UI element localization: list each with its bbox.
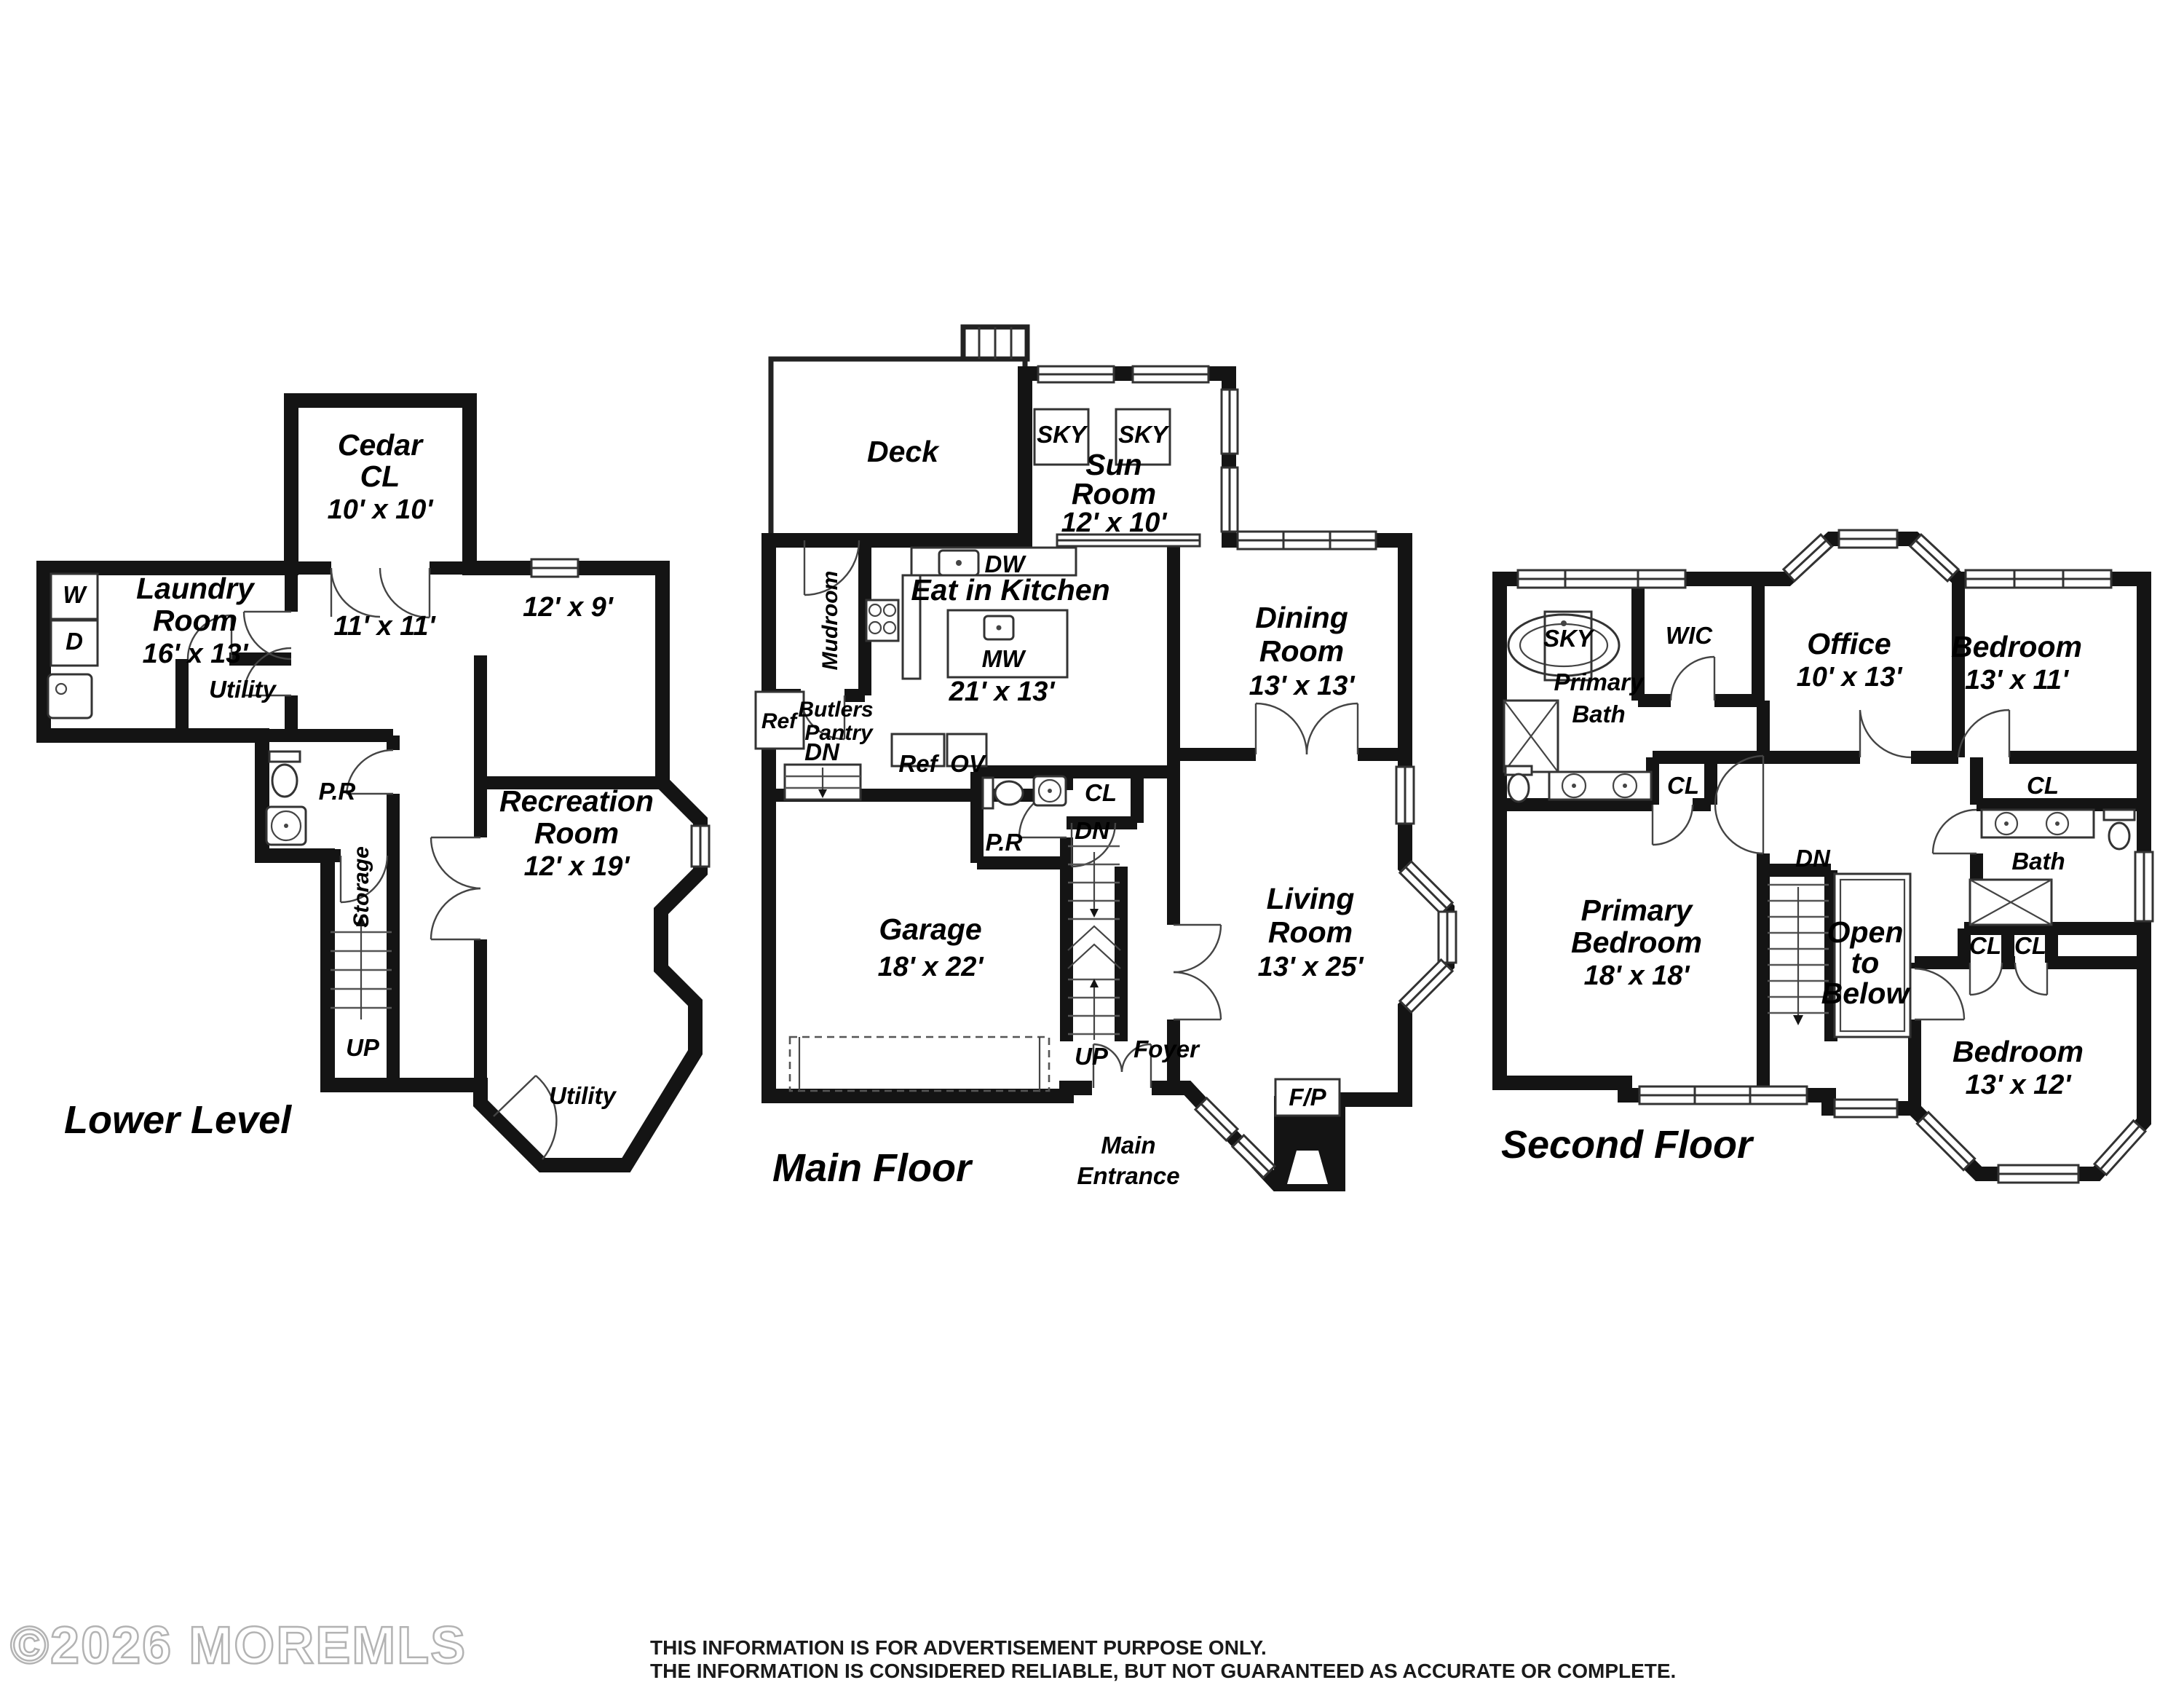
office-dims: 10' x 13' bbox=[1797, 662, 1904, 693]
office-label: Office bbox=[1807, 627, 1891, 660]
primary-shower bbox=[1504, 701, 1558, 772]
entrance-label-1: Main bbox=[1101, 1132, 1155, 1159]
living-label-1: Living bbox=[1267, 882, 1355, 915]
powder-sink bbox=[266, 807, 306, 845]
storage-label: Storage bbox=[349, 846, 373, 928]
bedroom2-dims: 13' x 12' bbox=[1966, 1070, 2073, 1100]
living-dims: 13' x 25' bbox=[1258, 952, 1365, 982]
dining-label-2: Room bbox=[1259, 634, 1344, 668]
sunroom-dims: 12' x 10' bbox=[1061, 508, 1168, 538]
cedar-label-1: Cedar bbox=[338, 428, 424, 462]
recreation-label-2: Room bbox=[534, 816, 619, 850]
bedroom1-closet-label: CL bbox=[2027, 772, 2059, 799]
laundry-dims: 16' x 13' bbox=[143, 639, 250, 669]
living-label-2: Room bbox=[1268, 915, 1353, 949]
second-dn-label: DN bbox=[1795, 845, 1831, 872]
primary-bath-label-1: Primary bbox=[1554, 669, 1645, 695]
dryer-label: D bbox=[66, 628, 83, 655]
primary-closet-label: CL bbox=[1667, 772, 1699, 799]
pantry-dn-label: DN bbox=[804, 738, 840, 765]
deck-label: Deck bbox=[867, 435, 940, 468]
lower-level-plan: W D Cedar CL 10' x 10' Laundry Room 16' … bbox=[44, 401, 709, 1165]
fireplace-label: F/P bbox=[1289, 1084, 1326, 1111]
stove bbox=[866, 600, 898, 641]
primary-vanity bbox=[1549, 772, 1651, 800]
wic-label: WIC bbox=[1666, 622, 1713, 649]
main-dn-label: DN bbox=[1075, 817, 1110, 844]
mw-label: MW bbox=[982, 645, 1026, 672]
lower-powder-label: P.R bbox=[319, 778, 356, 805]
kitchen-sink bbox=[939, 551, 978, 575]
dining-dims: 13' x 13' bbox=[1249, 671, 1356, 701]
primary-bedroom-dims: 18' x 18' bbox=[1584, 961, 1691, 991]
entrance-label-2: Entrance bbox=[1077, 1162, 1179, 1189]
bedroom1-dims: 13' x 11' bbox=[1965, 665, 2070, 695]
main-powder-label: P.R bbox=[986, 829, 1023, 856]
laundry-sink bbox=[48, 674, 92, 718]
recreation-dims: 12' x 19' bbox=[524, 851, 631, 882]
open-label-3: Below bbox=[1821, 977, 1912, 1010]
bath2-vanity bbox=[1982, 810, 2094, 837]
foyer-label: Foyer bbox=[1133, 1036, 1200, 1062]
utility-lower-label: Utility bbox=[549, 1082, 617, 1109]
main-floor-plan: Deck SKY SKY Sun Room 12' x 10' DW Eat i… bbox=[756, 327, 1456, 1190]
bedroom1-label: Bedroom bbox=[1951, 630, 2082, 663]
room-12x9-label: 12' x 9' bbox=[523, 592, 614, 623]
lower-up-label: UP bbox=[346, 1034, 380, 1061]
kitchen-label: Eat in Kitchen bbox=[911, 573, 1109, 607]
ref-label: Ref bbox=[898, 750, 939, 777]
dining-east-window bbox=[1396, 767, 1414, 824]
main-closet-label: CL bbox=[1085, 779, 1117, 806]
primary-toilet bbox=[1506, 766, 1532, 802]
sunroom-label-2: Room bbox=[1072, 477, 1156, 510]
primary-bath-top-window bbox=[1518, 570, 1685, 588]
bedroom2-label: Bedroom bbox=[1952, 1035, 2084, 1068]
deck bbox=[771, 327, 1027, 540]
second-sky-label: SKY bbox=[1543, 625, 1595, 652]
primary-bedroom-label-1: Primary bbox=[1581, 894, 1694, 927]
garage-label: Garage bbox=[879, 912, 981, 946]
mudroom-label: Mudroom bbox=[818, 571, 842, 671]
open-label-2: to bbox=[1851, 946, 1880, 979]
primary-bath-label-2: Bath bbox=[1572, 701, 1625, 727]
primary-bedroom-label-2: Bedroom bbox=[1571, 926, 1702, 959]
dining-top-window bbox=[1238, 532, 1376, 549]
bath2-shower bbox=[1970, 880, 2052, 925]
open-label-1: Open bbox=[1827, 915, 1904, 949]
disclaimer-line-1: THIS INFORMATION IS FOR ADVERTISEMENT PU… bbox=[650, 1636, 1267, 1659]
floor-plan-page: W D Cedar CL 10' x 10' Laundry Room 16' … bbox=[0, 0, 2184, 1688]
butlers-label-1: Butlers bbox=[798, 698, 873, 722]
garage-dims: 18' x 22' bbox=[878, 952, 985, 982]
powder-toilet bbox=[269, 752, 300, 797]
second-floor-title: Second Floor bbox=[1501, 1123, 1754, 1167]
sky2-label: SKY bbox=[1118, 421, 1170, 448]
ov-label: OV bbox=[950, 750, 987, 777]
main-up-label: UP bbox=[1075, 1043, 1109, 1070]
main-floor-title: Main Floor bbox=[772, 1146, 973, 1190]
mls-watermark: ©2026 MOREMLS bbox=[10, 1617, 467, 1675]
recreation-label-1: Recreation bbox=[499, 784, 654, 818]
closet-a-label: CL bbox=[1969, 932, 2001, 959]
sky1-label: SKY bbox=[1037, 421, 1088, 448]
bath2-label: Bath bbox=[2011, 848, 2065, 875]
second-floor-plan: SKY Primary Bath WIC CL Office 10' x 13'… bbox=[1500, 530, 2153, 1183]
entrance-opening bbox=[1092, 1078, 1152, 1098]
pantry-dn-stairs bbox=[785, 765, 860, 800]
kitchen-dims: 21' x 13' bbox=[949, 677, 1056, 707]
washer-label: W bbox=[63, 581, 87, 608]
bedroom1-top-window bbox=[1966, 570, 2111, 588]
cedar-label-2: CL bbox=[360, 460, 400, 493]
laundry-label-1: Laundry bbox=[136, 572, 256, 605]
cedar-dims: 10' x 10' bbox=[328, 494, 435, 525]
pantry-ref-label: Ref bbox=[761, 709, 799, 733]
bath2-east-window bbox=[2135, 852, 2153, 921]
window-12x9-top bbox=[531, 559, 578, 577]
hall-dims-label: 11' x 11' bbox=[333, 611, 436, 642]
closet-b-label: CL bbox=[2014, 932, 2046, 959]
laundry-label-2: Room bbox=[153, 604, 237, 637]
disclaimer-line-2: THE INFORMATION IS CONSIDERED RELIABLE, … bbox=[650, 1660, 1676, 1682]
island-sink bbox=[984, 616, 1013, 639]
lower-level-title: Lower Level bbox=[64, 1098, 292, 1142]
floor-plan-drawing: W D Cedar CL 10' x 10' Laundry Room 16' … bbox=[0, 0, 2184, 1688]
utility-upper-label: Utility bbox=[209, 676, 277, 703]
dining-label-1: Dining bbox=[1255, 601, 1348, 634]
window-recreation-bay bbox=[692, 826, 709, 867]
